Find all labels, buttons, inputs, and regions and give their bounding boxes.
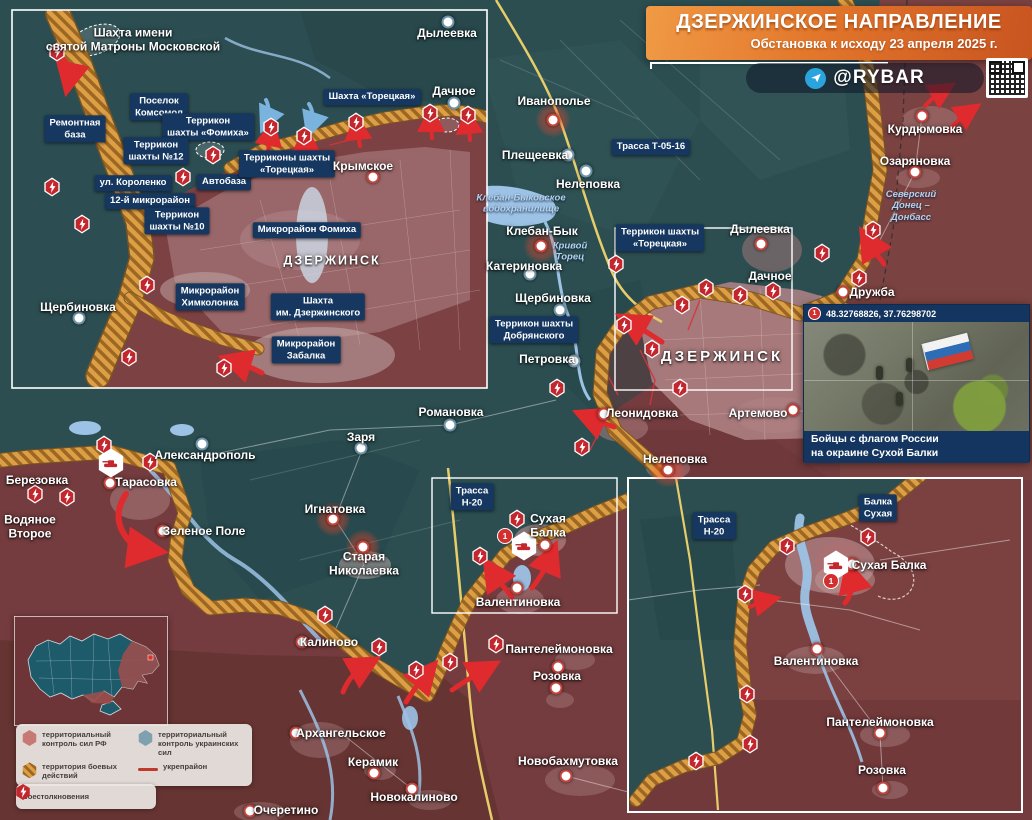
settlement-dot	[562, 149, 575, 162]
settlement-dot	[290, 727, 303, 740]
photo-inset: 1 48.32768826, 37.76298702 Бойцы с флаго…	[803, 304, 1030, 462]
settlement-dot	[511, 582, 524, 595]
legend-item-combat: территория боевых действий	[22, 762, 130, 780]
legend-item-line: укрепрайон	[138, 762, 246, 780]
marker-1-badge: 1	[823, 573, 839, 589]
telegram-icon	[805, 68, 826, 89]
legend-swatch-ua	[138, 730, 153, 746]
marker-1-badge: 1	[497, 528, 513, 544]
soldier-figure	[896, 392, 903, 406]
settlement-dot	[448, 97, 461, 110]
settlement-dot	[535, 240, 548, 253]
settlement-dot	[568, 355, 581, 368]
drone-photo	[804, 322, 1029, 431]
settlement-dot	[367, 171, 380, 184]
settlement-dot	[811, 643, 824, 656]
channel-badge: @RYBAR	[746, 63, 984, 93]
legend-clash-chip: боестолкновения	[16, 784, 156, 809]
settlement-dot	[524, 268, 537, 281]
page-title: ДЗЕРЖИНСКОЕ НАПРАВЛЕНИЕ	[646, 11, 1032, 34]
settlement-dot	[327, 513, 340, 526]
legend-label: территориальный контроль украинских сил	[158, 730, 246, 757]
settlement-dot	[550, 682, 563, 695]
settlement-dot	[539, 539, 552, 552]
settlement-dot	[552, 661, 565, 674]
settlement-dot	[916, 110, 929, 123]
soldier-figure	[876, 366, 883, 380]
settlement-dot	[442, 16, 455, 29]
settlement-dot	[196, 438, 209, 451]
settlement-dot	[554, 304, 567, 317]
russian-flag	[921, 333, 973, 371]
qr-pattern	[989, 61, 1025, 95]
crosshair-line	[912, 322, 913, 431]
settlement-dot	[368, 767, 381, 780]
page-subtitle: Обстановка к исходу 23 апреля 2025 г.	[646, 36, 1032, 51]
ukraine-minimap	[14, 616, 168, 726]
settlement-dot	[560, 770, 573, 783]
photo-coordinates: 48.32768826, 37.76298702	[826, 309, 936, 319]
legend-grid: территориальный контроль сил РФтерритори…	[22, 730, 246, 781]
settlement-dot	[444, 419, 457, 432]
settlement-dot	[787, 404, 800, 417]
legend-label: территориальный контроль сил РФ	[42, 730, 130, 748]
settlement-dot	[73, 312, 86, 325]
settlement-dot	[598, 408, 611, 421]
settlement-dot	[909, 166, 922, 179]
title-banner: ДЗЕРЖИНСКОЕ НАПРАВЛЕНИЕ Обстановка к исх…	[646, 6, 1032, 60]
settlement-dot	[244, 805, 257, 818]
legend-item-clash: боестолкновения	[23, 792, 89, 801]
settlement-dot	[755, 238, 768, 251]
legend-item-ua: территориальный контроль украинских сил	[138, 730, 246, 757]
settlement-dot	[874, 727, 887, 740]
settlement-dot	[662, 464, 675, 477]
legend-label: укрепрайон	[163, 762, 207, 771]
settlement-dot	[877, 782, 890, 795]
location-marker	[148, 655, 153, 660]
legend-swatch-rf	[22, 730, 37, 746]
photo-caption: Бойцы с флагом России на окраине Сухой Б…	[804, 431, 1029, 463]
settlement-dot	[406, 783, 419, 796]
settlement-dot	[580, 165, 593, 178]
marker-1-badge: 1	[808, 307, 821, 320]
settlement-dot	[355, 442, 368, 455]
legend-swatch-line	[138, 768, 158, 771]
legend-label: боестолкновения	[23, 792, 89, 801]
settlement-dot	[837, 286, 850, 299]
settlement-dot	[157, 525, 170, 538]
map-canvas: ИванопольеПлещеевкаНелеповкаТрасса Т-05-…	[0, 0, 1032, 820]
settlement-dot	[296, 636, 309, 649]
legend-label: территория боевых действий	[42, 762, 130, 780]
settlement-dot	[547, 114, 560, 127]
legend-swatch-combat	[22, 762, 37, 778]
crosshair-line	[804, 380, 1029, 381]
legend-item-rf: территориальный контроль сил РФ	[22, 730, 130, 757]
settlement-dot	[357, 541, 370, 554]
photo-header: 1 48.32768826, 37.76298702	[804, 305, 1029, 322]
legend: территориальный контроль сил РФтерритори…	[16, 724, 252, 786]
channel-handle: @RYBAR	[833, 67, 924, 89]
qr-code	[986, 58, 1028, 98]
settlement-dot	[104, 477, 117, 490]
